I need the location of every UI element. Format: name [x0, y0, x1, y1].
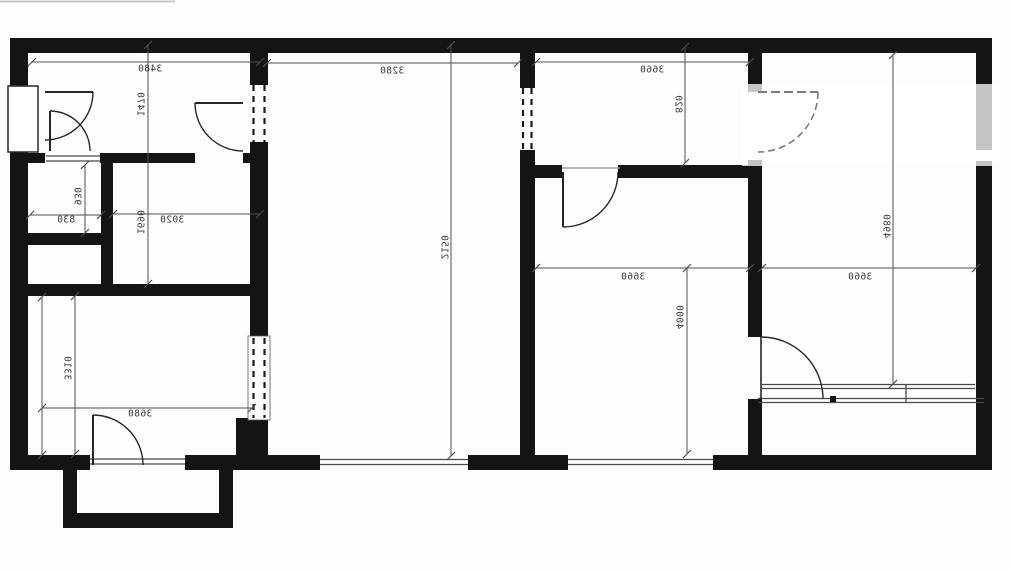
wall-segment: [236, 418, 268, 470]
wall-segment: [26, 153, 45, 163]
outer-wall-bottom-seg: [468, 455, 568, 470]
door-stop-tick: [830, 396, 836, 402]
wall-segment: [219, 467, 233, 525]
opening-fill: [520, 88, 535, 150]
door-swing-arc: [563, 172, 618, 227]
wall-segment: [748, 160, 762, 337]
floor-plan-svg: [0, 0, 1011, 570]
wall-segment: [101, 163, 113, 296]
wall-segment: [748, 38, 762, 92]
door-swing-arc: [50, 111, 90, 151]
outer-wall-bottom-seg: [10, 455, 90, 470]
door-swing-arc: [761, 337, 823, 399]
floor-plan-canvas: 3480147093083030201690328021503660820366…: [0, 0, 1011, 570]
wall-segment: [26, 233, 113, 245]
door-swing-arc: [93, 415, 143, 465]
interior-walls: [10, 38, 762, 470]
wall-segment: [748, 399, 762, 470]
doors: [45, 92, 823, 465]
wall-segment: [618, 165, 748, 178]
windows-and-sills: [46, 156, 984, 465]
vestibule-walls: [63, 467, 233, 528]
wall-segment: [63, 513, 233, 528]
wall-segment: [535, 165, 562, 178]
opening-fill: [248, 336, 270, 420]
wall-segment: [520, 150, 535, 470]
wall-segment: [250, 142, 268, 338]
wall-segment: [243, 153, 253, 163]
outer-wall-top: [10, 38, 992, 53]
door-swing-arc: [195, 103, 243, 151]
dashed-openings: [248, 85, 535, 420]
wall-segment: [520, 38, 535, 88]
wall-segment: [10, 284, 268, 296]
wall-niche: [8, 86, 38, 152]
watermark-erase-overlay: [742, 84, 1000, 166]
